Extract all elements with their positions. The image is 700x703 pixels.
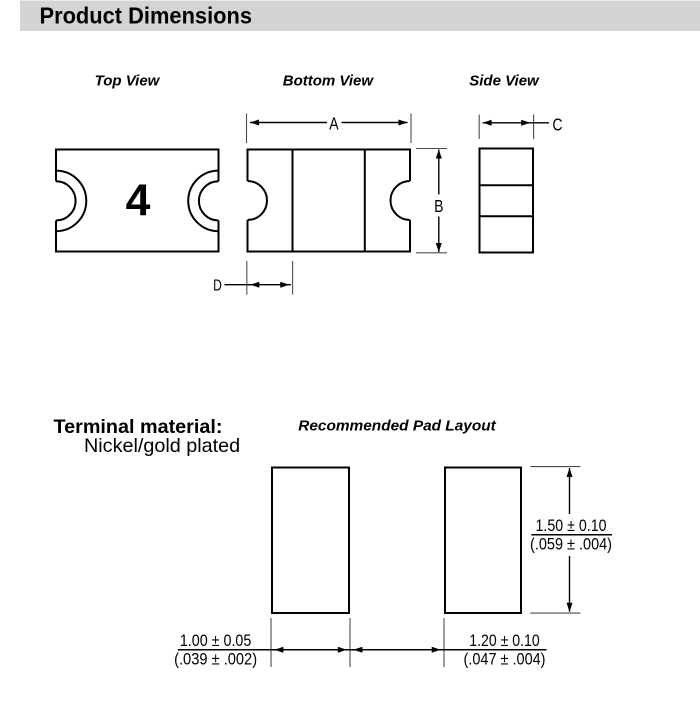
svg-text:4: 4 <box>126 176 151 225</box>
svg-text:Product Dimensions: Product Dimensions <box>40 3 253 29</box>
svg-text:1.20 ± 0.10: 1.20 ± 0.10 <box>469 632 540 650</box>
svg-text:Bottom View: Bottom View <box>283 73 375 90</box>
svg-text:1.00 ± 0.05: 1.00 ± 0.05 <box>180 632 252 650</box>
svg-text:B: B <box>434 196 443 216</box>
svg-text:D: D <box>213 276 222 294</box>
svg-text:A: A <box>329 114 339 134</box>
svg-text:(.059 ± .004): (.059 ± .004) <box>530 536 612 554</box>
svg-text:1.50 ± 0.10: 1.50 ± 0.10 <box>536 517 607 535</box>
svg-text:Nickel/gold plated: Nickel/gold plated <box>84 435 240 457</box>
svg-text:(.047 ± .004): (.047 ± .004) <box>464 651 546 669</box>
svg-text:C: C <box>552 115 562 135</box>
svg-text:Side View: Side View <box>469 73 540 90</box>
svg-text:(.039 ± .002): (.039 ± .002) <box>174 651 257 669</box>
svg-text:Recommended Pad Layout: Recommended Pad Layout <box>298 417 497 434</box>
svg-text:Top View: Top View <box>95 73 161 90</box>
